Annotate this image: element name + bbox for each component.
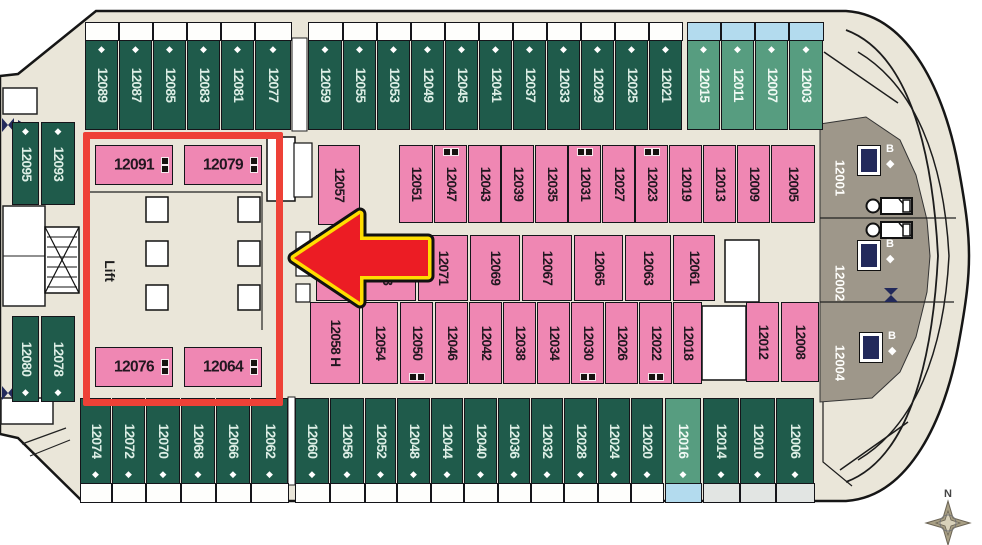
deck-plan: N 12089◆12087◆12085◆12083◆12081◆12077◆12… [0, 0, 982, 545]
annotation-layer [0, 0, 982, 545]
big-left-arrow-icon [294, 214, 428, 302]
